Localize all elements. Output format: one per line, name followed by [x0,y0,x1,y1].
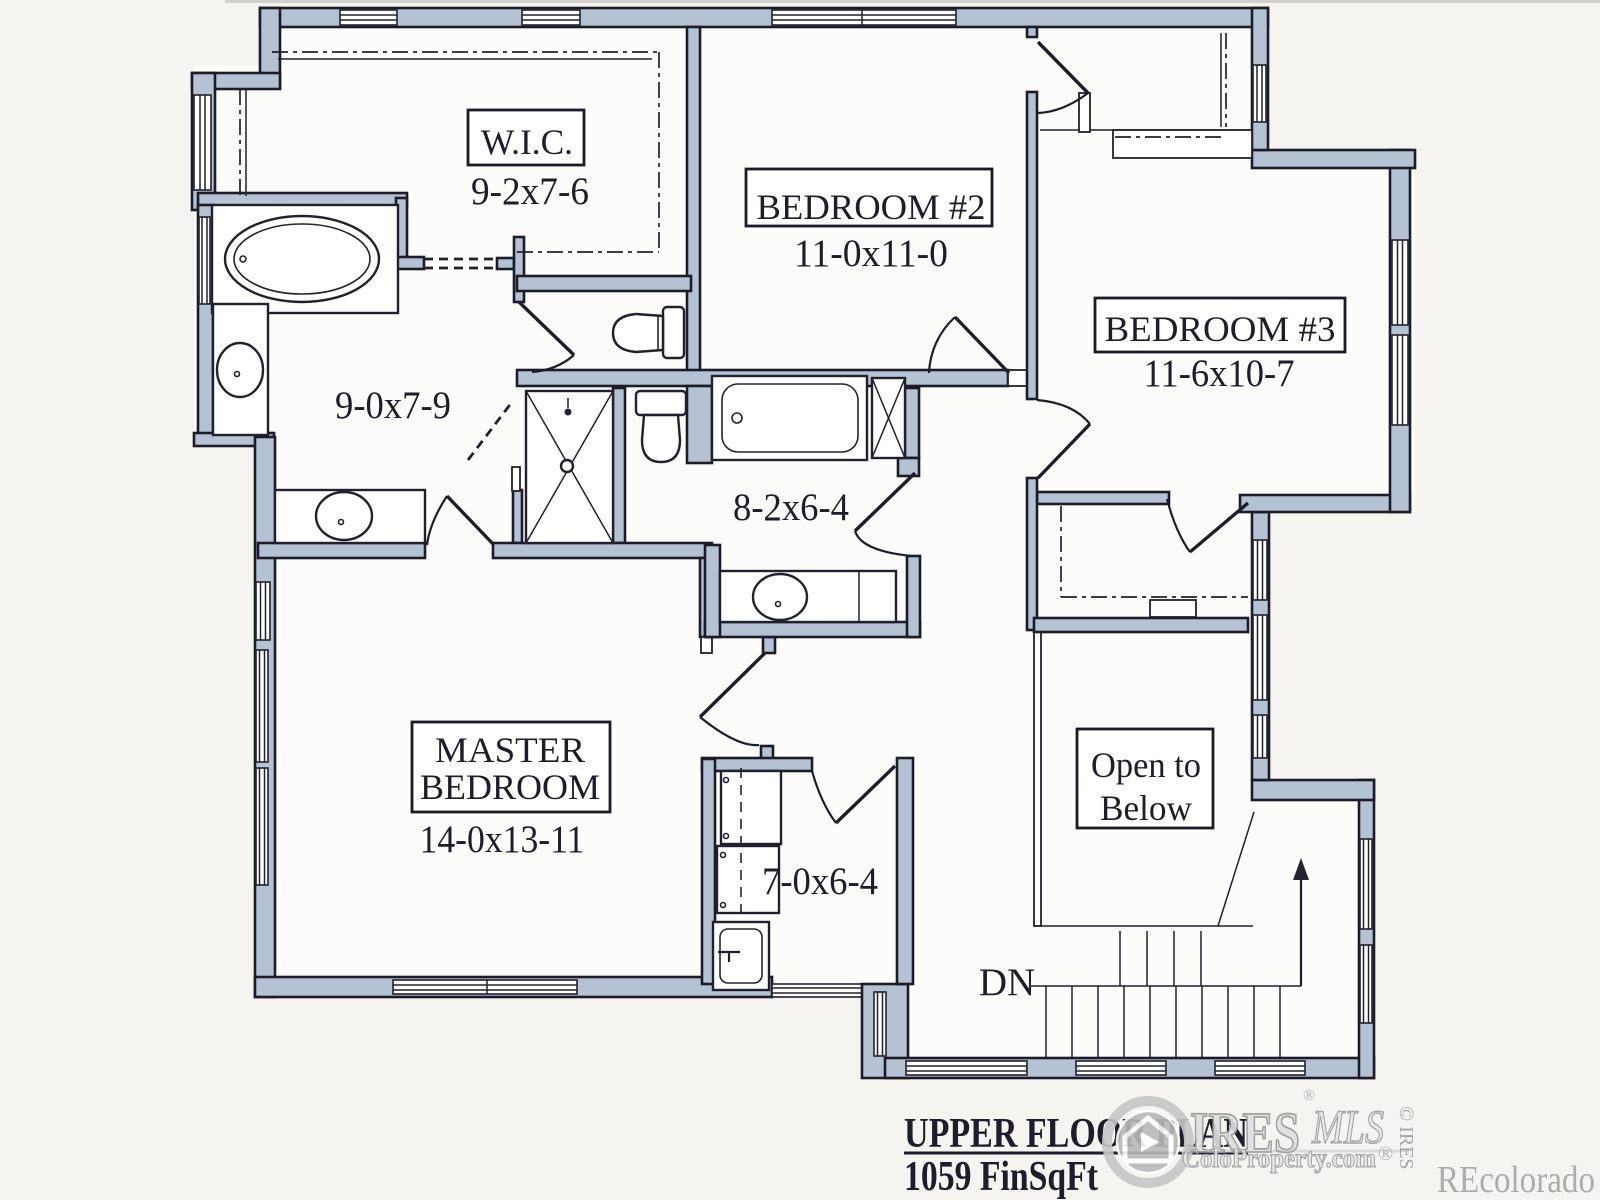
svg-text:DN: DN [979,961,1035,1004]
svg-text:14-0x13-11: 14-0x13-11 [420,818,585,861]
svg-text:8-2x6-4: 8-2x6-4 [733,486,849,529]
svg-text:Open to: Open to [1091,745,1201,785]
svg-text:9-2x7-6: 9-2x7-6 [471,170,589,213]
svg-text:7-0x6-4: 7-0x6-4 [762,860,878,903]
svg-text:BEDROOM: BEDROOM [420,767,600,807]
svg-text:REcolorado: REcolorado [1437,1159,1595,1200]
svg-text:BEDROOM #3: BEDROOM #3 [1105,309,1336,349]
svg-text:© IRES: © IRES [1395,1106,1417,1170]
svg-text:9-0x7-9: 9-0x7-9 [335,384,451,427]
svg-text:1059 FinSqFt: 1059 FinSqFt [904,1154,1098,1200]
svg-text:Below: Below [1100,788,1192,828]
svg-text:BEDROOM #2: BEDROOM #2 [757,187,986,227]
svg-text:11-0x11-0: 11-0x11-0 [794,232,948,275]
svg-text:MASTER: MASTER [435,730,585,770]
svg-text:ColoProperty.com: ColoProperty.com [1182,1143,1376,1173]
svg-text:11-6x10-7: 11-6x10-7 [1144,352,1295,395]
svg-text:®: ® [1378,1143,1393,1165]
svg-text:W.I.C.: W.I.C. [481,122,573,162]
